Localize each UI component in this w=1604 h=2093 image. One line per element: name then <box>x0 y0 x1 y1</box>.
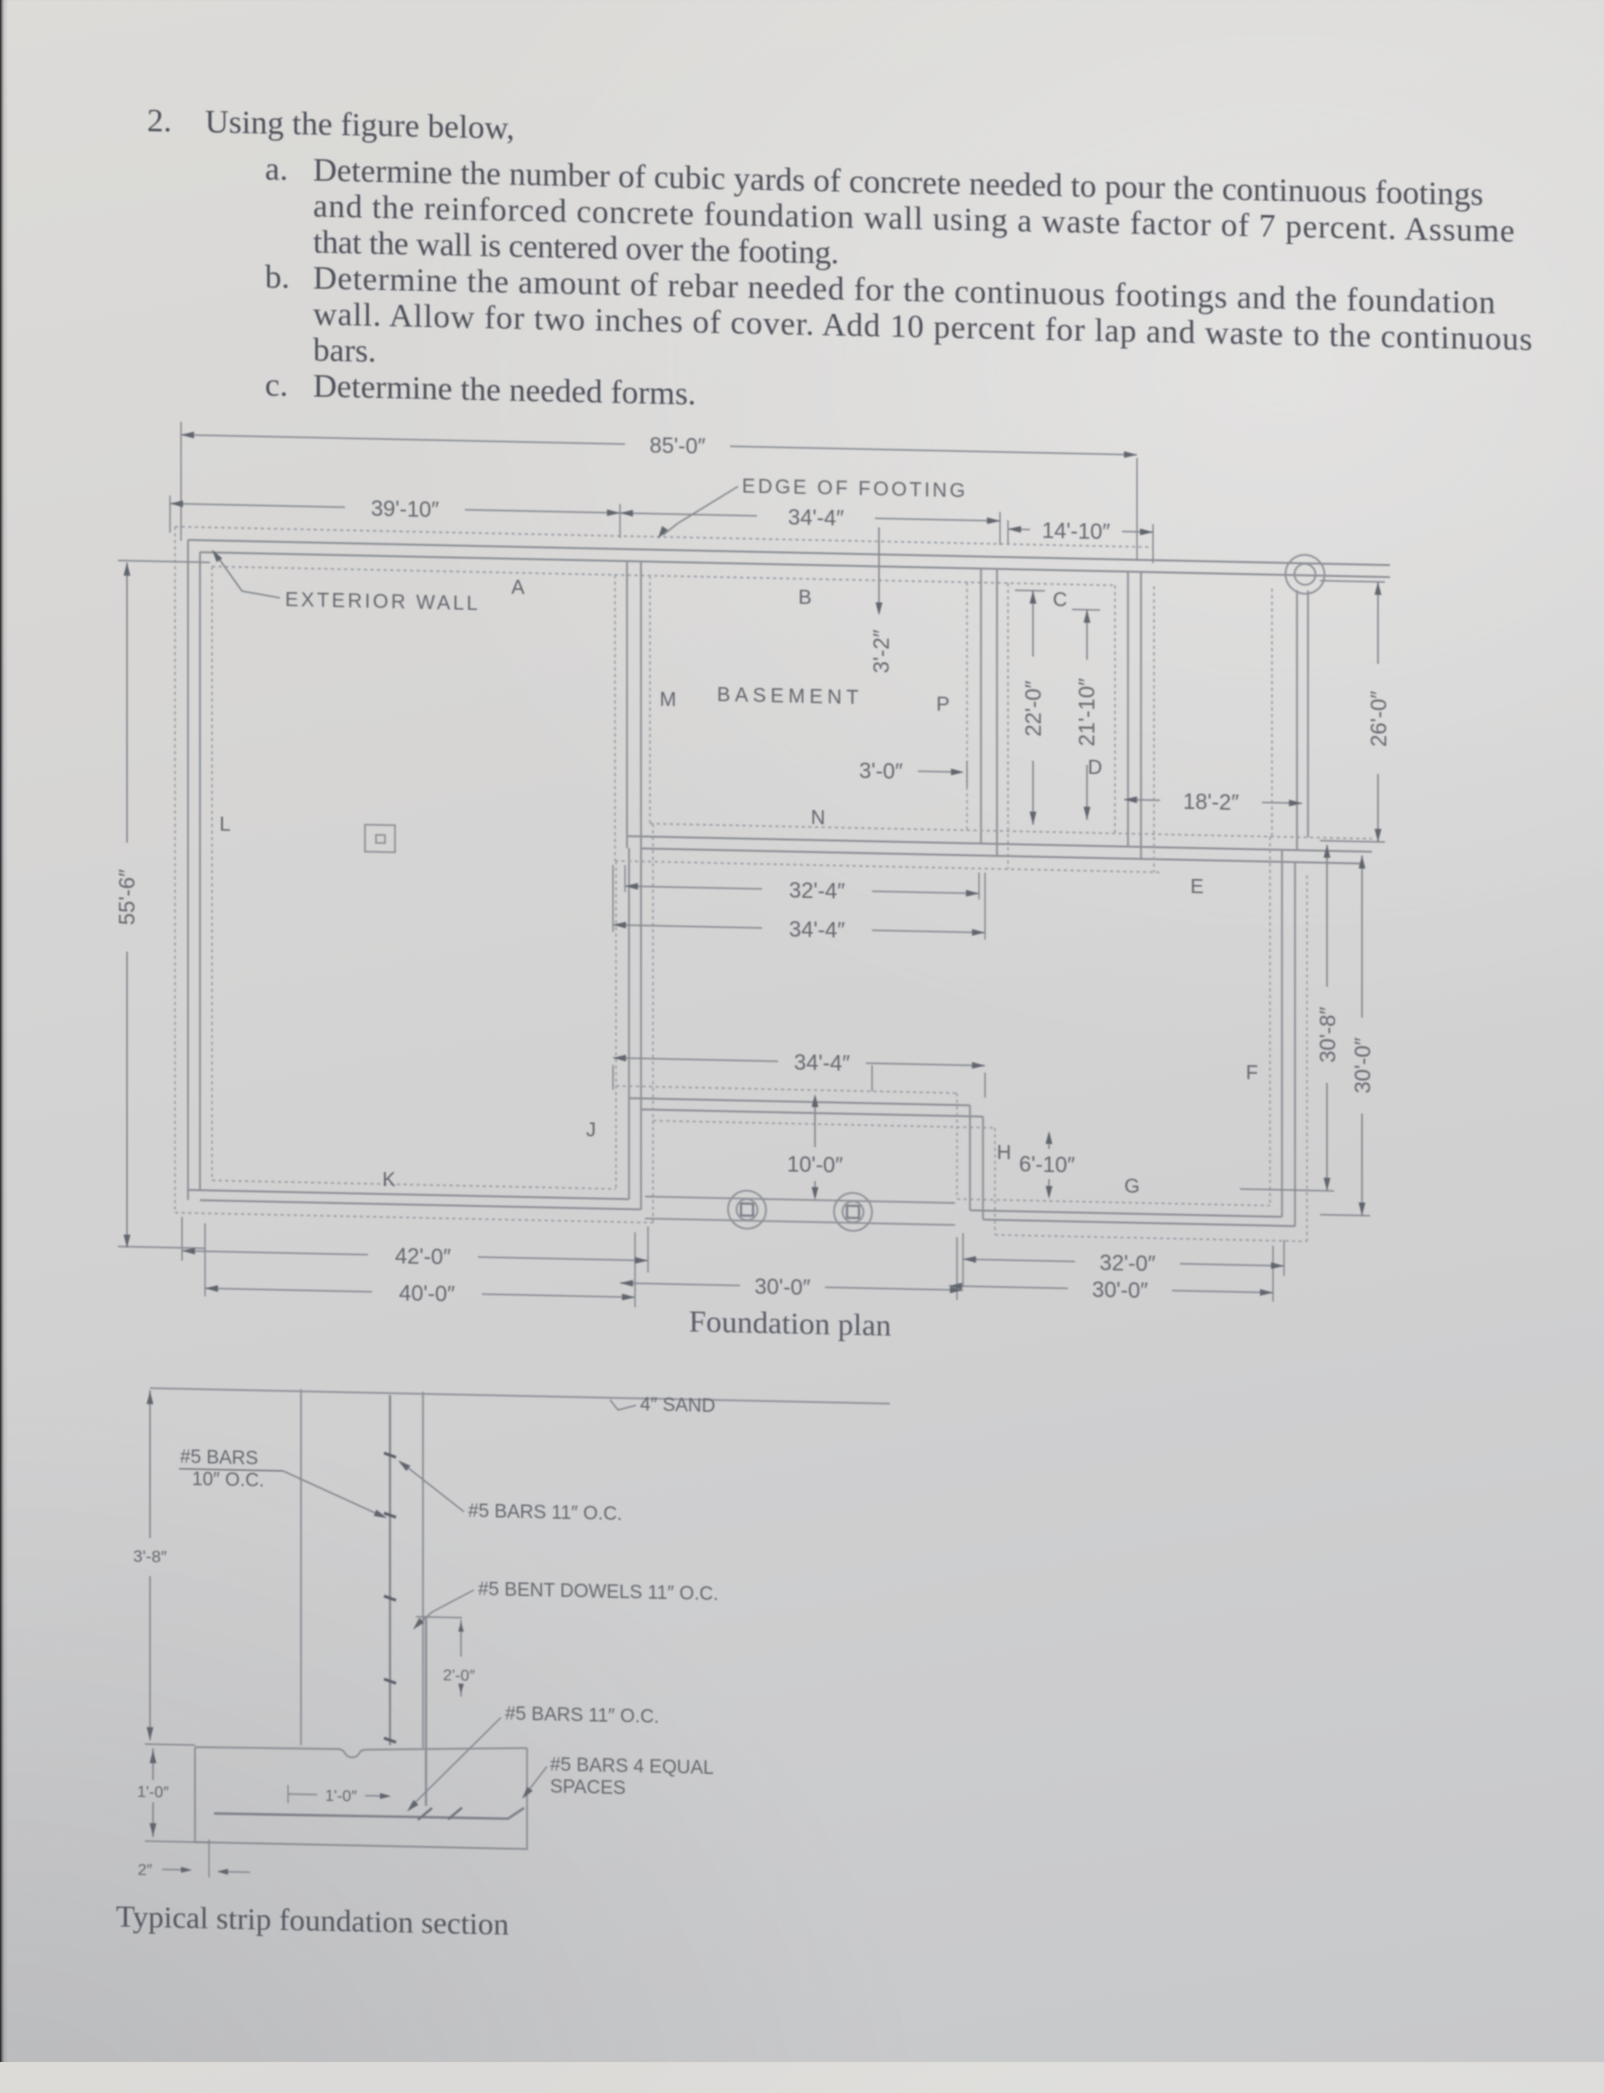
svg-text:E: E <box>1190 876 1203 898</box>
svg-text:#5 BARS 11″ O.C.: #5 BARS 11″ O.C. <box>505 1704 659 1728</box>
svg-text:18'-2″: 18'-2″ <box>1183 789 1239 815</box>
svg-text:EDGE OF FOOTING: EDGE OF FOOTING <box>742 476 968 503</box>
svg-text:2'-0″: 2'-0″ <box>443 1667 475 1685</box>
svg-text:34'-4″: 34'-4″ <box>794 1050 850 1076</box>
svg-text:4″ SAND: 4″ SAND <box>640 1394 715 1417</box>
svg-text:K: K <box>382 1169 396 1191</box>
svg-text:55'-6″: 55'-6″ <box>115 869 140 926</box>
svg-text:3'-2″: 3'-2″ <box>869 629 894 674</box>
svg-text:30'-0″: 30'-0″ <box>1092 1277 1148 1303</box>
svg-text:M: M <box>660 689 677 711</box>
svg-text:3'-8″: 3'-8″ <box>133 1547 167 1567</box>
svg-text:85'-0″: 85'-0″ <box>649 433 705 459</box>
svg-text:10″ O.C.: 10″ O.C. <box>192 1469 264 1492</box>
svg-text:F: F <box>1246 1062 1258 1084</box>
svg-text:10'-0″: 10'-0″ <box>787 1151 843 1177</box>
svg-text:39'-10″: 39'-10″ <box>371 496 439 522</box>
svg-text:1'-0″: 1'-0″ <box>137 1784 169 1802</box>
svg-text:B: B <box>798 587 811 609</box>
svg-text:21'-10″: 21'-10″ <box>1075 678 1100 747</box>
svg-text:42'-0″: 42'-0″ <box>395 1243 451 1269</box>
svg-text:34'-4″: 34'-4″ <box>789 917 845 943</box>
svg-text:30'-0″: 30'-0″ <box>754 1274 810 1300</box>
svg-text:22'-0″: 22'-0″ <box>1021 680 1046 737</box>
svg-text:#5 BARS 11″ O.C.: #5 BARS 11″ O.C. <box>468 1501 622 1525</box>
svg-text:L: L <box>219 814 230 836</box>
svg-text:Typical strip foundation secti: Typical strip foundation section <box>116 1898 509 1941</box>
svg-text:BASEMENT: BASEMENT <box>717 684 863 709</box>
svg-text:G: G <box>1124 1176 1140 1198</box>
svg-text:P: P <box>936 694 949 716</box>
svg-text:30'-8″: 30'-8″ <box>1315 1006 1340 1063</box>
svg-text:A: A <box>511 577 525 599</box>
svg-text:#5 BENT DOWELS 11″ O.C.: #5 BENT DOWELS 11″ O.C. <box>478 1579 718 1605</box>
svg-text:30'-0″: 30'-0″ <box>1350 1037 1375 1094</box>
svg-text:EXTERIOR WALL: EXTERIOR WALL <box>285 589 480 615</box>
svg-text:H: H <box>997 1142 1011 1164</box>
svg-text:34'-4″: 34'-4″ <box>788 505 844 531</box>
svg-text:6'-10″: 6'-10″ <box>1019 1151 1075 1177</box>
svg-text:#5 BARS 4 EQUAL: #5 BARS 4 EQUAL <box>550 1755 714 1779</box>
svg-text:D: D <box>1088 757 1102 779</box>
svg-text:3'-0″: 3'-0″ <box>859 758 903 784</box>
svg-text:40'-0″: 40'-0″ <box>399 1280 455 1306</box>
svg-text:32'-4″: 32'-4″ <box>789 878 845 904</box>
svg-text:J: J <box>586 1119 596 1141</box>
svg-text:#5 BARS: #5 BARS <box>180 1447 258 1470</box>
svg-text:32'-0″: 32'-0″ <box>1099 1250 1155 1276</box>
svg-text:SPACES: SPACES <box>550 1777 626 1800</box>
svg-text:14'-10″: 14'-10″ <box>1042 518 1110 544</box>
svg-text:Foundation plan: Foundation plan <box>689 1303 892 1342</box>
svg-text:N: N <box>811 807 825 829</box>
svg-text:2″: 2″ <box>138 1862 153 1879</box>
svg-text:C: C <box>1053 589 1067 611</box>
svg-text:1'-0″: 1'-0″ <box>325 1788 357 1806</box>
svg-text:26'-0″: 26'-0″ <box>1366 690 1391 747</box>
